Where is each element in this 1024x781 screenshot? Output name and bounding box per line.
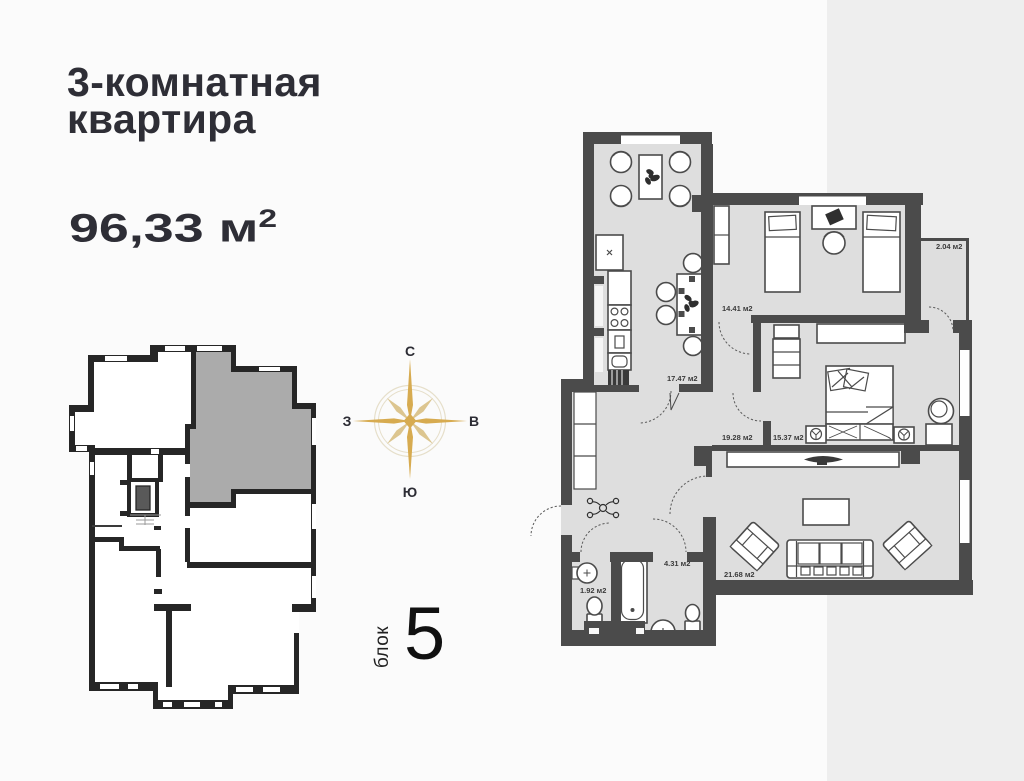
svg-text:15.37 м2: 15.37 м2 [773, 433, 804, 442]
svg-text:4.31 м2: 4.31 м2 [664, 559, 690, 568]
svg-text:З: З [343, 413, 352, 429]
svg-text:2.04 м2: 2.04 м2 [936, 242, 962, 251]
svg-text:19.28 м2: 19.28 м2 [722, 433, 753, 442]
svg-text:Ю: Ю [403, 484, 417, 500]
svg-text:В: В [469, 413, 479, 429]
svg-text:14.41 м2: 14.41 м2 [722, 304, 753, 313]
svg-text:17.47 м2: 17.47 м2 [667, 374, 698, 383]
svg-text:С: С [405, 343, 415, 359]
svg-text:21.68 м2: 21.68 м2 [724, 570, 755, 579]
svg-text:1.92 м2: 1.92 м2 [580, 586, 606, 595]
